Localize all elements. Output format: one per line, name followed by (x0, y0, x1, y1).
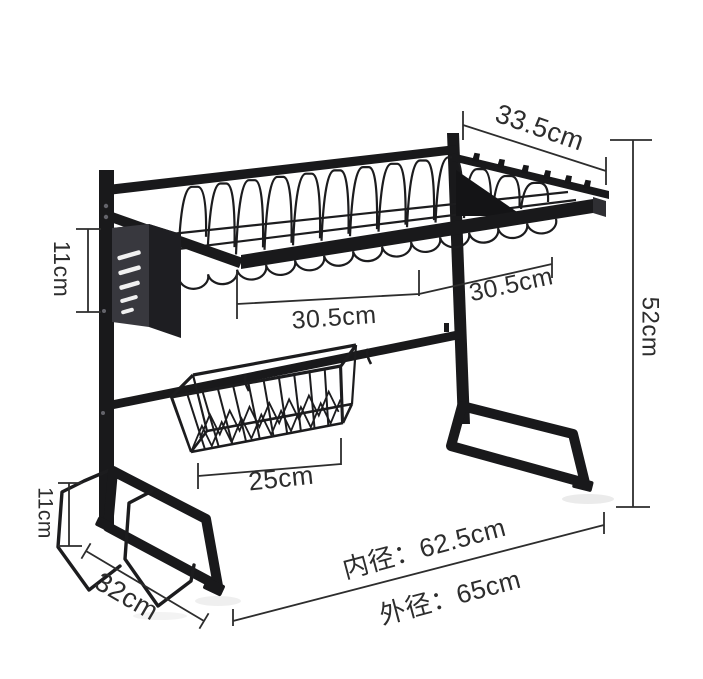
product-dimension-image: 33.5cm 11cm 30.5cm 30.5cm 52cm 25cm 11cm… (0, 0, 703, 679)
dim-label-left-section: 30.5cm (291, 301, 378, 335)
screw-dot (101, 411, 105, 415)
knife-box-side (149, 224, 181, 338)
screw-dot (102, 309, 106, 313)
dim-label-knife-holder: 11cm (49, 241, 75, 298)
shadow-right-foot (562, 494, 614, 504)
dim-label-board-holder: 11cm (34, 487, 57, 539)
dim-label-overall-height: 52cm (637, 297, 664, 358)
dish-rack-diagram: 33.5cm 11cm 30.5cm 30.5cm 52cm 25cm 11cm… (0, 0, 703, 679)
middle-rail-stub (444, 323, 449, 332)
shadow-left-foot (195, 596, 241, 606)
screw-dot (104, 204, 108, 208)
screw-dot (104, 215, 108, 219)
knife-holder-box (112, 224, 181, 338)
